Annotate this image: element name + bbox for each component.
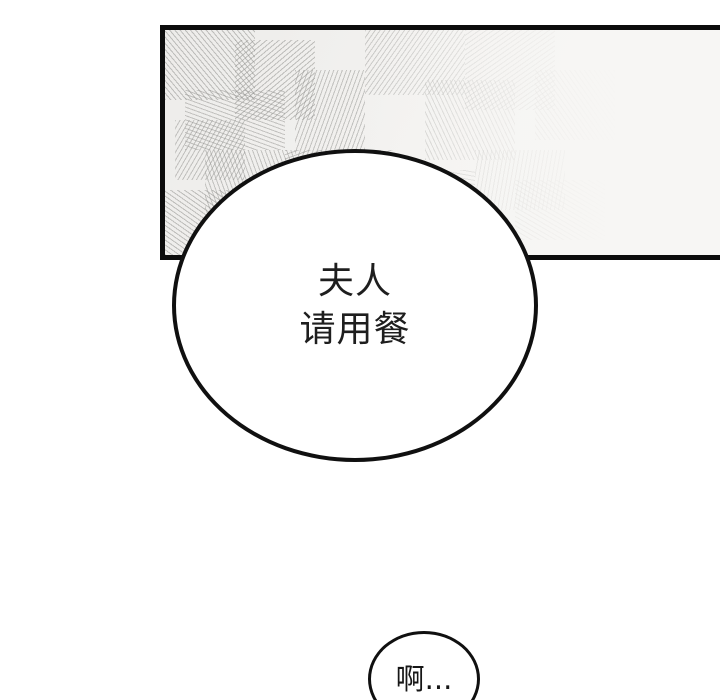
speech-line-2: 请用餐	[299, 306, 410, 354]
speech-bubble-main: 夫人 请用餐	[172, 149, 538, 462]
speech-line-1: 夫人	[299, 258, 410, 306]
speech-bubble-small-text: 啊...	[396, 663, 453, 695]
speech-bubble-main-text: 夫人 请用餐	[299, 258, 410, 354]
comic-page: 夫人 请用餐 啊...	[0, 0, 720, 700]
speech-bubble-small: 啊...	[368, 631, 480, 700]
